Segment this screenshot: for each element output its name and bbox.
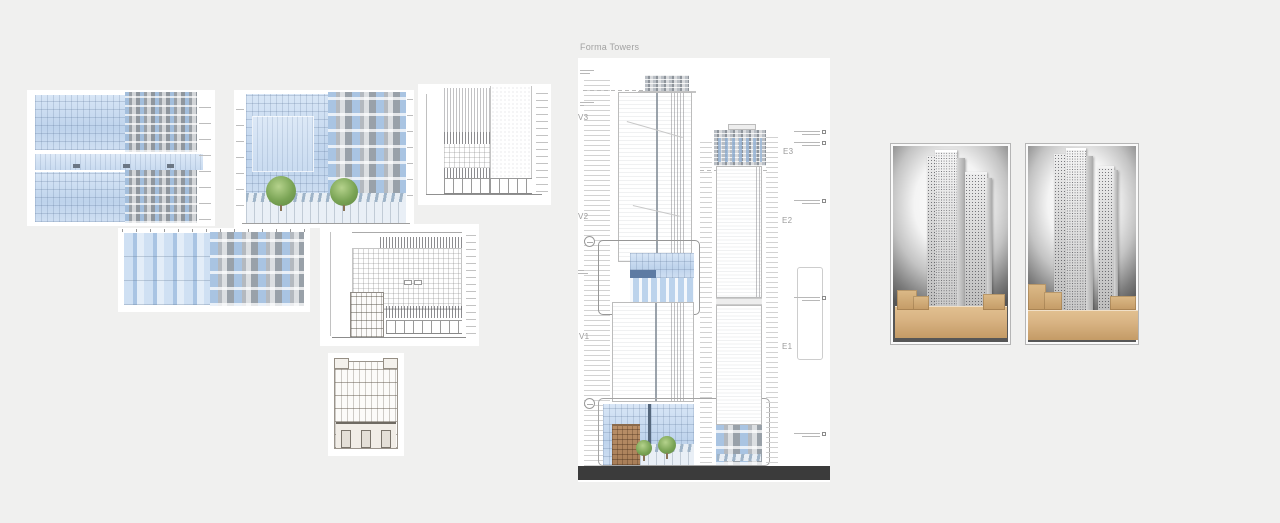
annotation-text [794,142,820,143]
dimension-ticks [199,96,211,220]
tree-graphic [330,178,358,206]
model-tower-block [935,150,957,310]
storefront-graphic [246,202,406,223]
card-street-elevation[interactable] [234,90,414,228]
glass-band-graphic [35,154,203,170]
e-tower-break-band [716,298,762,305]
ground-line [332,337,466,338]
storefront-graphic [490,178,532,194]
detail-marker-bubble [584,236,595,247]
glass-strip-facade [124,233,210,305]
annotation-text [580,73,590,74]
model-tower-side [1086,156,1093,312]
parapet-tower [334,358,349,369]
level-label-v2: V2 [578,212,588,221]
design-canvas[interactable]: { "canvas": { "board_title": "Forma Towe… [0,0,1280,523]
v-tower-roof-graphic [645,75,689,92]
cap-blue-windows [718,138,762,162]
model-photo-side[interactable] [1025,143,1139,345]
callout-icon [822,141,826,145]
tag-box [404,280,412,285]
model-context-block [983,294,1005,310]
parapet-tower [383,358,398,369]
tree-graphic [658,436,676,454]
model-tower-side [1114,170,1118,312]
annotation-text [794,297,820,298]
ground-line [426,194,542,195]
podium-graphic [444,88,490,132]
annotation-text [580,70,594,71]
annotation-text [794,131,820,132]
door-graphic [381,430,391,448]
level-label-v3: V3 [578,113,588,122]
tower-dot-facade [490,86,532,178]
level-ruler [700,138,712,468]
side-hatch [671,93,685,261]
dark-band-graphic [444,168,490,178]
band-mark [123,164,130,168]
side-hatch [671,303,685,401]
section-extent-box [797,267,823,360]
callout-icon [822,130,826,134]
model-context-block [1110,296,1136,310]
card-facade-closeup[interactable] [118,228,310,312]
model-tower-side [987,178,992,310]
model-wood-base [1028,310,1138,340]
level-label-e2: E2 [782,216,792,225]
grid-line [330,232,331,336]
door-graphic [341,430,351,448]
mullion-line [655,303,657,401]
side-hatch [756,167,762,297]
card-line-elevation-west[interactable] [320,224,479,346]
glass-facade-graphic [35,172,131,222]
roof-line [352,232,462,233]
e-tower-cap-graphic [714,130,766,166]
ground-band [578,466,830,480]
callout-icon [822,199,826,203]
e-tower-upper-shaft [716,166,762,298]
tag-box [414,280,422,285]
v-tower-upper-shaft [618,92,692,262]
storefront-graphic [444,178,490,194]
card-line-elevation-east[interactable] [418,84,551,205]
annotation-text [802,134,820,135]
model-photo-front[interactable] [890,143,1011,345]
checker-facade-graphic [125,92,197,152]
model-context-block [913,296,929,310]
checker-facade-graphic [125,170,197,223]
dark-band-graphic [380,237,462,248]
annotation-text [802,300,820,301]
dimension-ticks [407,94,413,196]
tree-graphic [266,176,296,206]
card-facade-sections[interactable] [27,90,215,226]
band-mark [167,164,174,168]
callout-icon [822,296,826,300]
level-ticks [466,234,476,334]
glass-facade-graphic [35,95,131,150]
annotation-text [802,145,820,146]
dimension-ticks [236,96,244,206]
card-heritage-facade[interactable] [328,353,404,456]
glass-inner-panel [252,116,314,172]
dark-band-graphic [444,132,490,144]
model-tower-block [1098,166,1114,312]
grid-line [426,94,427,194]
detail-marker-bubble [584,398,595,409]
model-tower-side [957,158,965,308]
model-tower-block [965,172,987,312]
level-label-e3: E3 [783,147,793,156]
level-ruler [766,133,778,468]
canopy-row-graphic [386,320,462,334]
tree-graphic [636,440,652,456]
callout-icon [822,432,826,436]
model-tower-block [1066,148,1086,312]
forma-board[interactable]: V3 V2 V1 E3 E2 E1 [578,58,830,482]
e-tower-lower-shaft [716,305,762,425]
base-canopy-graphic [717,454,761,461]
mullion-line [656,93,658,261]
model-context-block [1044,292,1062,310]
checker-facade-graphic [210,232,304,306]
level-ticks [536,88,548,192]
mid-band-graphic [444,144,490,168]
dark-band-graphic [386,306,462,318]
annotation-text [794,200,820,201]
heritage-facade-graphic [334,361,398,449]
heritage-building-graphic [350,292,384,338]
door-graphic [361,430,371,448]
level-label-e1: E1 [782,342,792,351]
annotation-text [794,433,820,434]
storefront-graphic [336,422,396,448]
level-label-v1: V1 [579,332,589,341]
board-title: Forma Towers [580,42,639,52]
band-mark [73,164,80,168]
annotation-text [802,436,820,437]
v-tower-lower-shaft [612,302,694,402]
annotation-text [802,203,820,204]
model-wood-base [895,306,1007,338]
datum-line [583,90,645,91]
